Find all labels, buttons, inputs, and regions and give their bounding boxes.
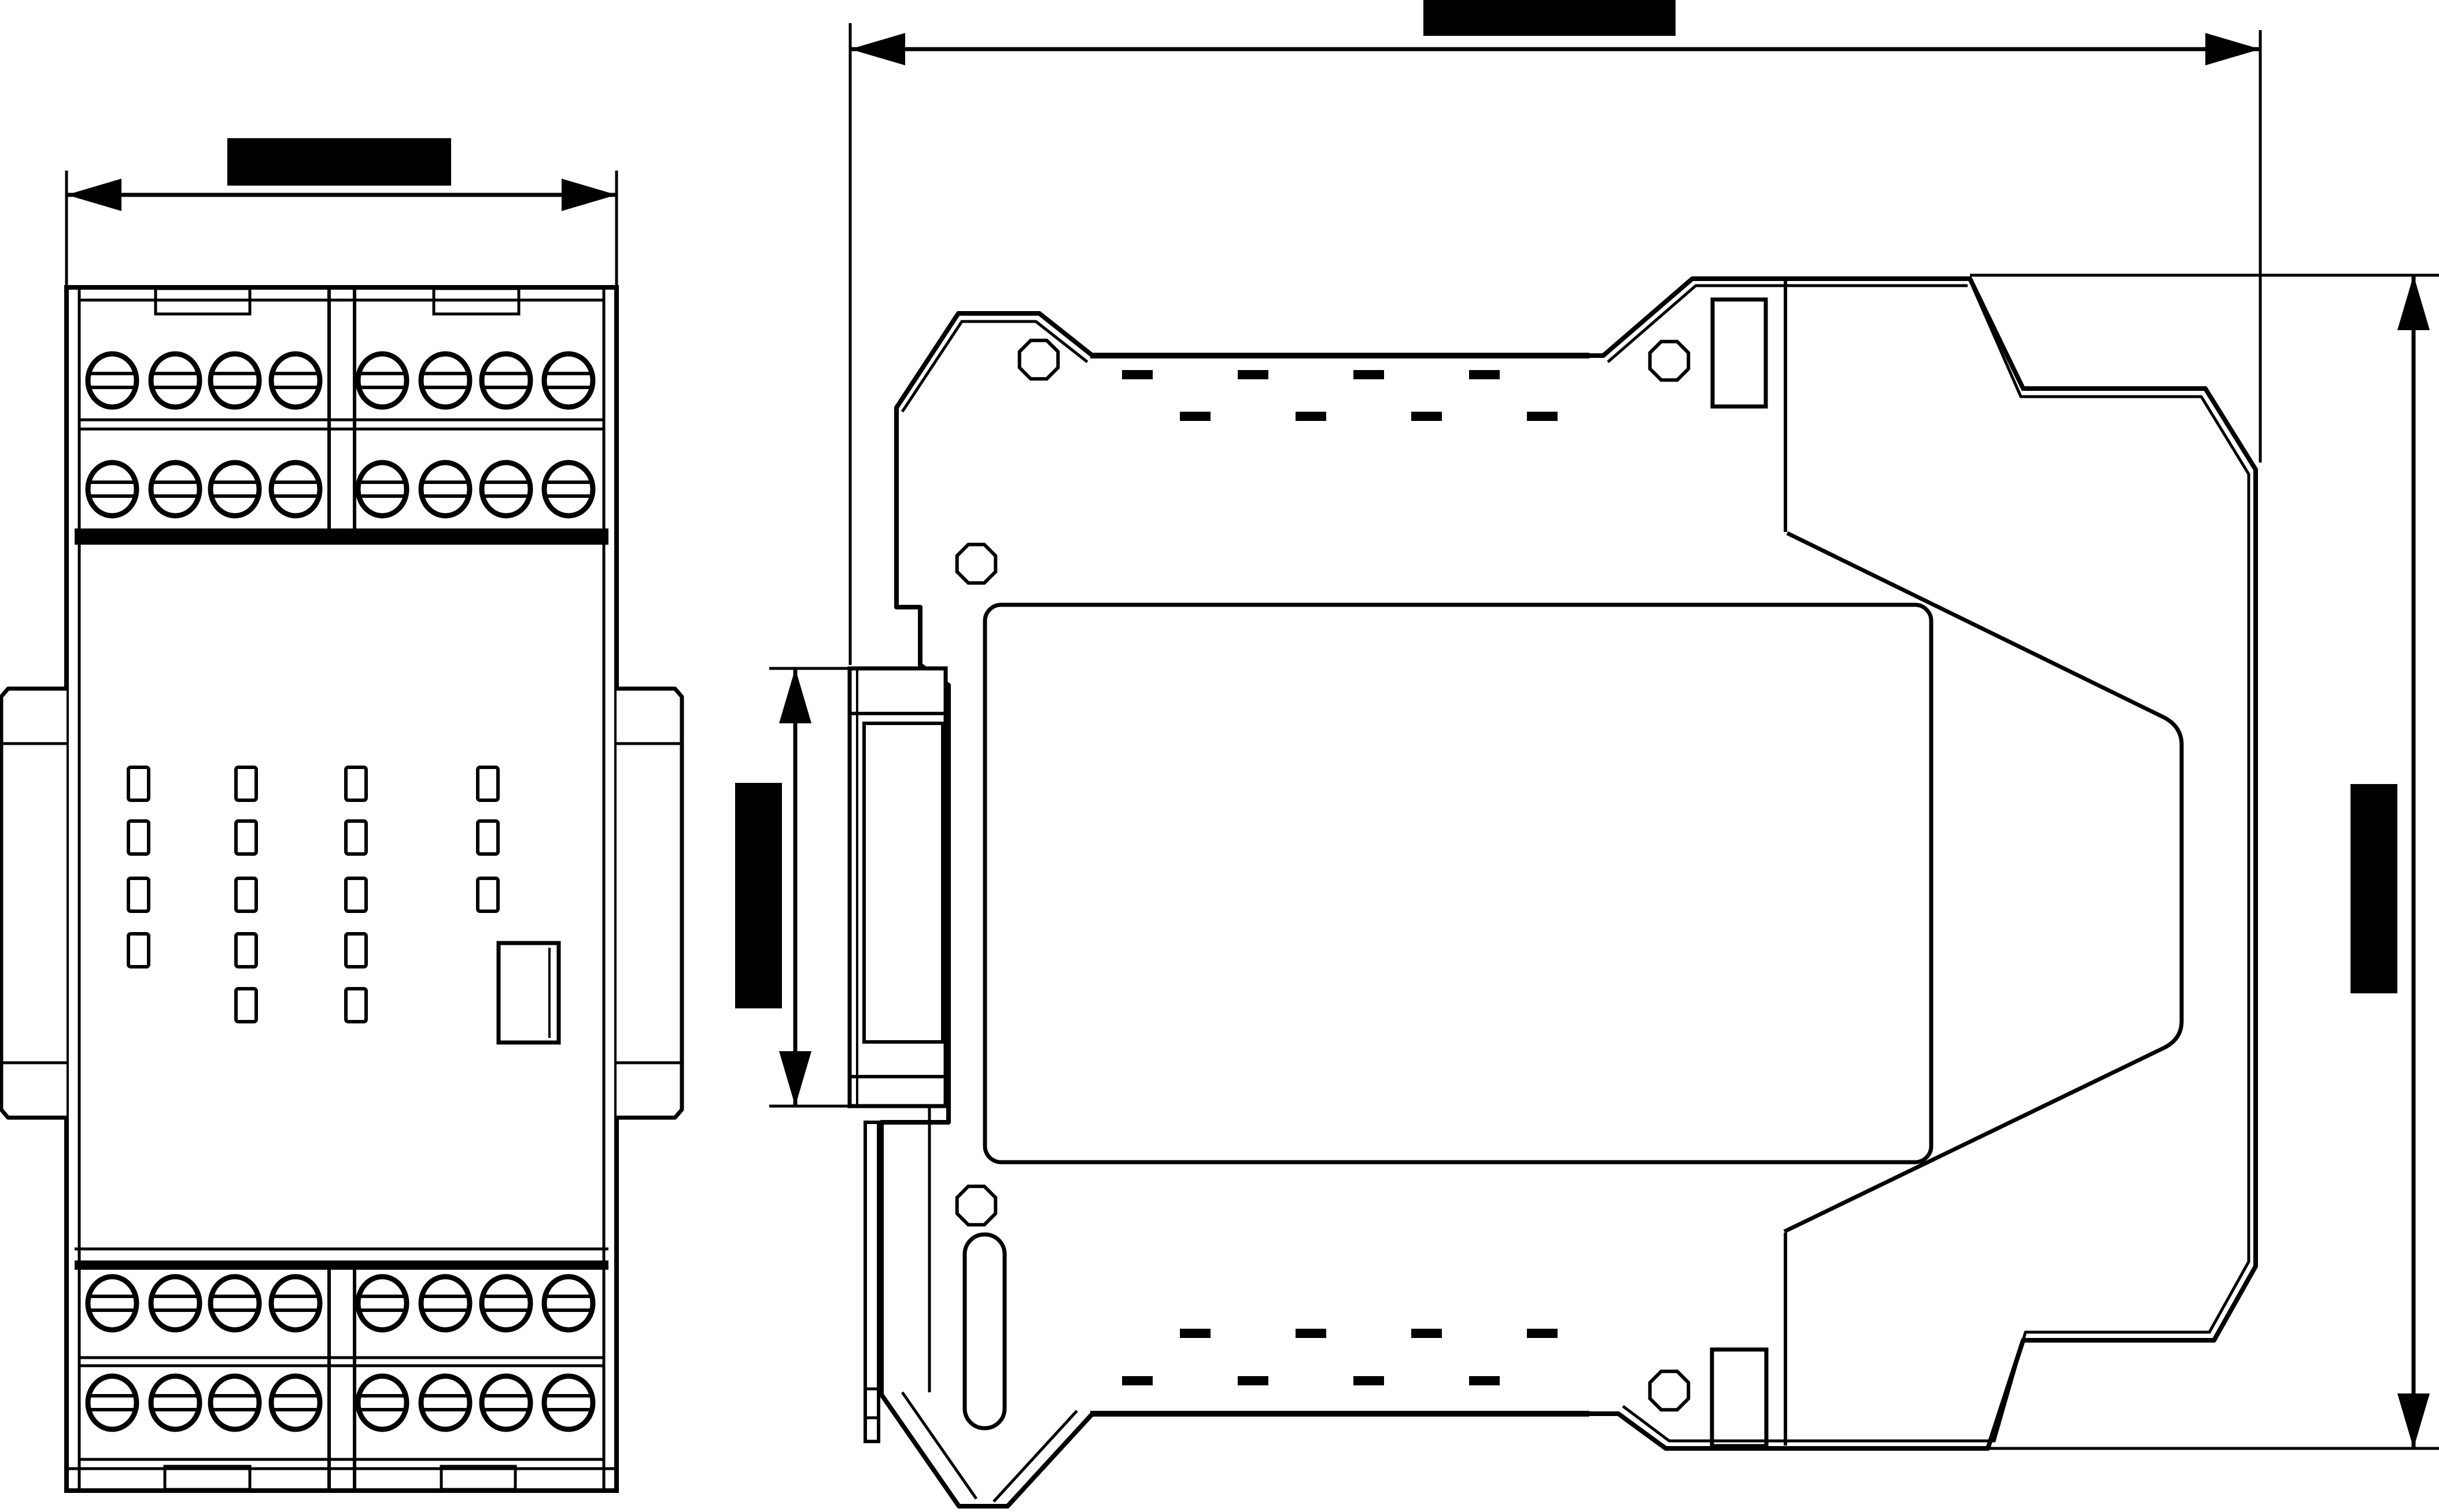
screw-terminal xyxy=(211,1376,259,1429)
led-indicator xyxy=(346,934,366,967)
side-detail-12 xyxy=(965,1234,1005,1428)
octagon-holes xyxy=(957,341,1689,1410)
fin-web xyxy=(1527,412,1558,421)
dimension-arrowhead xyxy=(2205,33,2260,65)
vent-fins-top xyxy=(1090,356,1589,421)
led-indicator xyxy=(236,878,256,911)
fin-web xyxy=(1469,370,1500,379)
side-detail-8 xyxy=(1784,533,2182,1232)
octagon-hole xyxy=(1650,342,1689,380)
side-detail-19 xyxy=(865,1122,879,1441)
led-indicator xyxy=(236,989,256,1022)
led-indicator xyxy=(128,878,149,911)
fin-web xyxy=(1353,1376,1384,1385)
led-indicator xyxy=(346,878,366,911)
screw-terminal xyxy=(151,1277,200,1330)
led-indicator xyxy=(478,767,498,800)
octagon-hole xyxy=(957,545,996,583)
screw-terminal xyxy=(358,463,407,516)
dimension-overall-height xyxy=(1666,275,2439,1448)
dimension-arrowhead xyxy=(779,1051,811,1106)
redacted-dimension-label xyxy=(2351,784,2397,993)
technical-drawing xyxy=(0,0,2439,1512)
front-detail-12 xyxy=(75,1260,608,1270)
octagon-hole xyxy=(1020,341,1058,379)
screw-terminal xyxy=(151,1376,200,1429)
screw-terminal xyxy=(482,1376,530,1429)
led-indicator xyxy=(478,821,498,854)
screw-terminal xyxy=(271,354,320,407)
fin-web xyxy=(1122,1376,1153,1385)
screw-terminal xyxy=(88,354,136,407)
side-detail-0 xyxy=(881,279,2256,1506)
dimension-arrowhead xyxy=(67,179,121,211)
redacted-dimension-label xyxy=(735,783,782,1008)
redacted-dimension-label xyxy=(227,138,451,186)
screw-terminal xyxy=(271,463,320,516)
led-indicator xyxy=(236,767,256,800)
fin-web xyxy=(1527,1329,1558,1338)
screw-terminal xyxy=(88,1376,136,1429)
front-detail-10 xyxy=(75,528,608,545)
screw-terminal xyxy=(88,463,136,516)
screw-terminal xyxy=(211,1277,259,1330)
octagon-hole xyxy=(957,1186,996,1225)
dimension-arrowhead xyxy=(779,668,811,723)
led-indicator xyxy=(128,767,149,800)
led-indicator xyxy=(128,934,149,967)
redacted-dimension-label xyxy=(1423,0,1676,36)
front-detail-24 xyxy=(617,689,682,1118)
screw-terminal xyxy=(358,354,407,407)
octagon-hole xyxy=(1650,1371,1689,1410)
fin-web xyxy=(1238,1376,1268,1385)
dimension-arrowhead xyxy=(850,33,905,65)
led-indicator xyxy=(236,821,256,854)
side-detail-11 xyxy=(1712,1350,1766,1446)
fin-web xyxy=(1411,412,1442,421)
screw-terminal xyxy=(271,1376,320,1429)
screw-terminal xyxy=(151,354,200,407)
screw-terminal xyxy=(482,354,530,407)
screw-terminal xyxy=(482,1277,530,1330)
fin-web xyxy=(1180,412,1211,421)
screw-terminal xyxy=(421,463,470,516)
side-detail-3 xyxy=(1623,286,2249,1441)
screw-terminal xyxy=(358,1277,407,1330)
dimension-arrowhead xyxy=(2397,1393,2430,1448)
drawing-page xyxy=(0,0,2439,1512)
dimension-front-width xyxy=(67,138,617,287)
led-indicator xyxy=(478,878,498,911)
led-indicator xyxy=(346,767,366,800)
side-detail-4 xyxy=(994,1411,1077,1502)
screw-terminal xyxy=(211,354,259,407)
led-indicator xyxy=(236,934,256,967)
side-detail-10 xyxy=(1713,300,1766,406)
screw-terminal xyxy=(211,463,259,516)
screw-terminal xyxy=(421,1376,470,1429)
dimension-arrowhead xyxy=(562,179,617,211)
fin-web xyxy=(1180,1329,1211,1338)
led-indicator xyxy=(346,821,366,854)
fin-web xyxy=(1411,1329,1442,1338)
screw-terminal xyxy=(88,1277,136,1330)
vent-fins-bottom xyxy=(1090,1329,1589,1414)
screw-terminal xyxy=(151,463,200,516)
screw-terminal xyxy=(482,463,530,516)
fin-web xyxy=(1238,370,1268,379)
screw-terminal xyxy=(271,1277,320,1330)
screw-terminal xyxy=(421,354,470,407)
screw-terminal xyxy=(544,463,593,516)
fin-web xyxy=(1353,370,1384,379)
fin-web xyxy=(1122,370,1153,379)
side-view xyxy=(850,279,2256,1506)
fin-web xyxy=(1296,1329,1326,1338)
led-indicator xyxy=(128,821,149,854)
screw-terminal xyxy=(544,1277,593,1330)
led-indicator xyxy=(346,989,366,1022)
fin-web xyxy=(1469,1376,1500,1385)
screw-terminal xyxy=(358,1376,407,1429)
dimension-arrowhead xyxy=(2397,275,2430,330)
screw-terminal xyxy=(421,1277,470,1330)
side-detail-9 xyxy=(985,605,1931,1162)
screw-terminal xyxy=(544,354,593,407)
screw-terminal xyxy=(544,1376,593,1429)
fin-web xyxy=(1296,412,1326,421)
front-detail-21 xyxy=(1,689,67,1118)
